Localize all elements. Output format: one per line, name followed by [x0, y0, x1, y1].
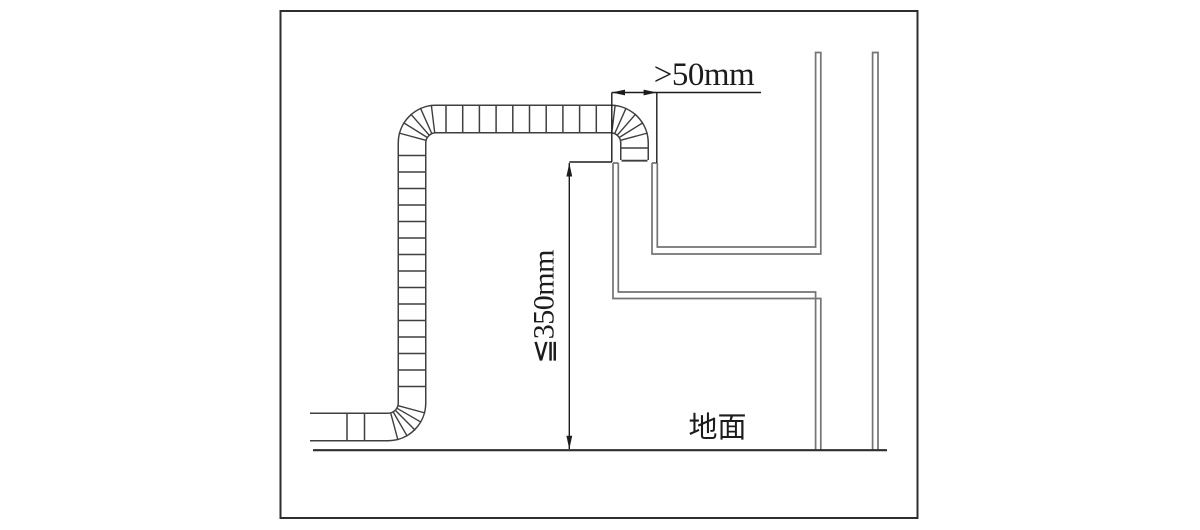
- duct-inner-wall: [618, 163, 815, 450]
- corrugated-flue-pipe: [308, 105, 648, 440]
- ground-label: 地面: [688, 411, 746, 444]
- arrow-down-icon: [566, 436, 572, 450]
- arrow-left-icon: [612, 90, 625, 96]
- outer-shaft-wall: [873, 53, 878, 450]
- diagram-canvas: >50mm ≦350mm 地面: [0, 0, 1200, 530]
- arrow-up-icon: [566, 163, 572, 177]
- wall-flue-shaft: [613, 53, 878, 450]
- clearance-dimension-label: >50mm: [654, 57, 755, 93]
- height-dimension-label: ≦350mm: [528, 250, 561, 364]
- drawing-border: [281, 11, 918, 518]
- pipe-interior: [308, 119, 635, 427]
- duct-outer-wall: [613, 163, 821, 450]
- pipe-elbow-fans: [391, 105, 648, 440]
- installation-diagram: >50mm ≦350mm 地面: [0, 0, 1200, 530]
- pipe-corrugation-ticks: [347, 106, 648, 440]
- pipe-outline: [310, 119, 635, 427]
- height-dimension: [566, 162, 611, 449]
